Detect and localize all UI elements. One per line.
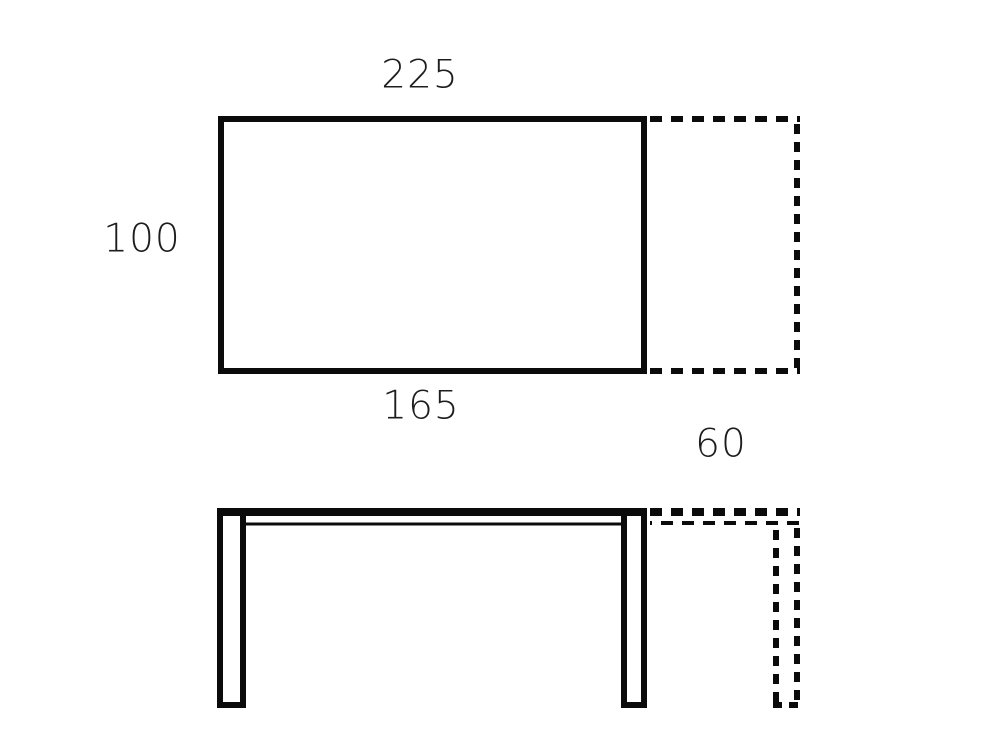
front-tabletop-slab <box>217 508 647 516</box>
label-depth: 100 <box>103 220 180 259</box>
front-left-leg <box>220 512 243 705</box>
drawing-svg <box>0 0 1000 750</box>
label-closed-width: 165 <box>382 387 459 426</box>
label-extended-width: 225 <box>381 56 458 95</box>
top-view-solid-outline <box>221 119 644 371</box>
front-right-leg <box>624 512 644 705</box>
table-dimensions-diagram: 225 100 165 60 <box>0 0 1000 750</box>
front-view <box>217 508 800 705</box>
label-extension-width: 60 <box>695 425 747 464</box>
top-view <box>221 119 800 371</box>
